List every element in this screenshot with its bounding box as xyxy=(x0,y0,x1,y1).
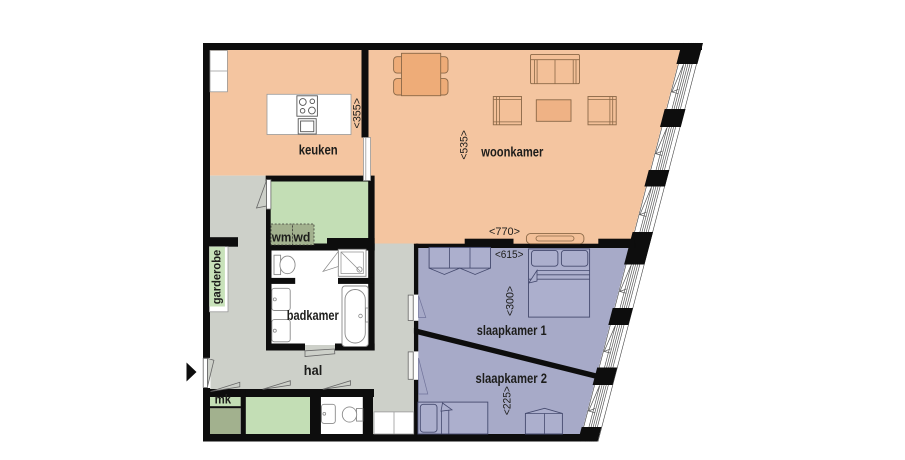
svg-text:<225>: <225> xyxy=(502,386,514,415)
svg-text:<355>: <355> xyxy=(351,98,363,129)
svg-text:slaapkamer 2: slaapkamer 2 xyxy=(476,371,548,386)
svg-text:mk: mk xyxy=(215,392,232,407)
svg-text:<615>: <615> xyxy=(495,249,524,261)
svg-text:wd: wd xyxy=(292,230,310,245)
svg-text:<535>: <535> xyxy=(458,130,470,160)
svg-text:badkamer: badkamer xyxy=(287,308,340,323)
svg-text:keuken: keuken xyxy=(299,142,338,157)
svg-text:garderobe: garderobe xyxy=(211,249,224,304)
svg-text:woonkamer: woonkamer xyxy=(480,145,543,160)
svg-text:hal: hal xyxy=(304,363,323,378)
svg-text:<300>: <300> xyxy=(505,286,517,316)
svg-text:wm: wm xyxy=(271,230,291,245)
svg-text:slaapkamer 1: slaapkamer 1 xyxy=(477,323,547,338)
svg-text:<770>: <770> xyxy=(489,226,520,238)
